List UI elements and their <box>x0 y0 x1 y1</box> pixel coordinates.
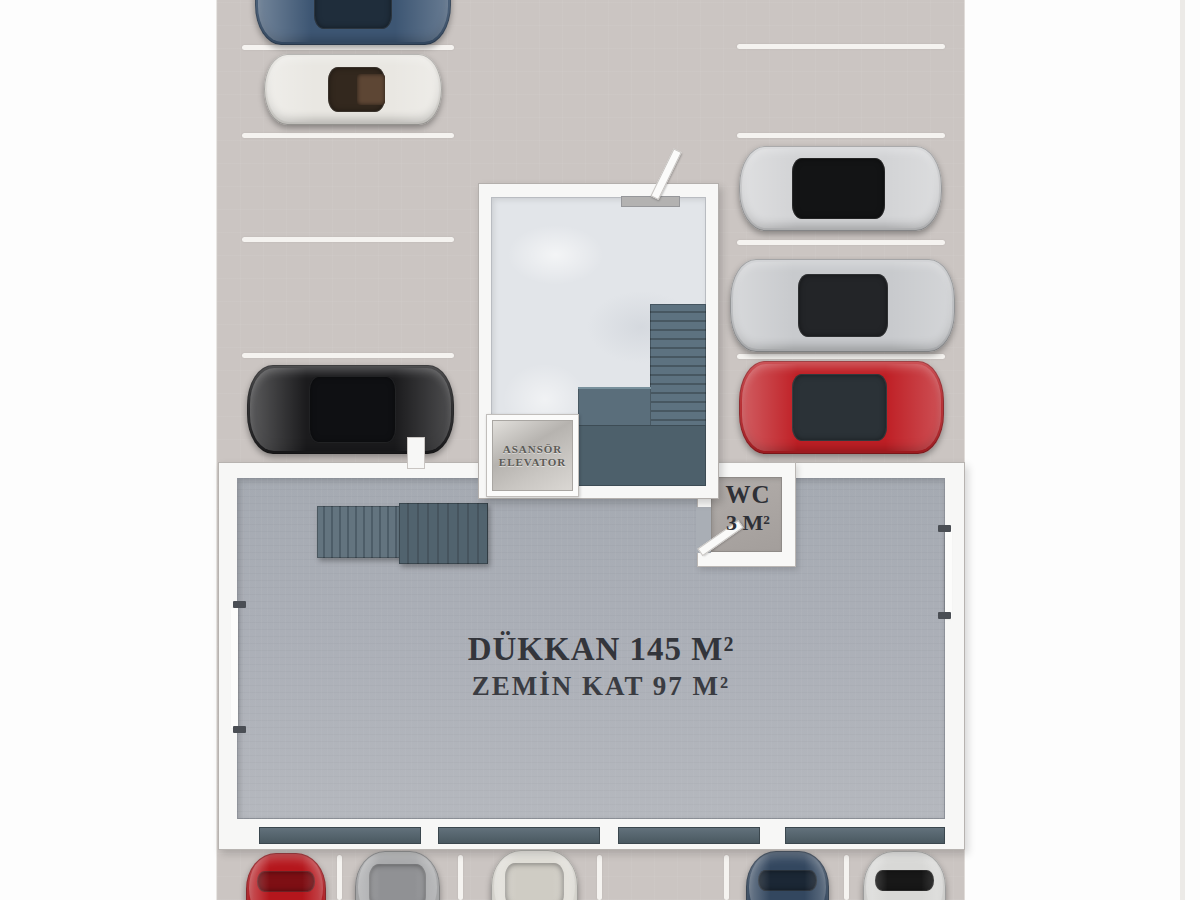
car-red-front-glass <box>257 871 315 892</box>
parking-line-bottom-4 <box>724 855 729 900</box>
parking-line-left-2 <box>242 133 454 138</box>
shop-total-area: DÜKKAN 145 M² <box>468 631 735 668</box>
car-darkblue-front-glass <box>758 870 818 892</box>
lot-right-edge <box>1180 0 1185 900</box>
car-red-coupe <box>739 361 944 454</box>
car-silver-sedan-glass <box>798 274 888 337</box>
parking-line-right-2 <box>737 133 945 138</box>
shop-stairs-upper-flight <box>399 503 488 564</box>
car-darkblue-sedan-top <box>255 0 451 45</box>
car-silver-covered-front <box>355 851 440 900</box>
car-white-convertible-seats <box>357 74 385 105</box>
car-white-convertible <box>264 54 442 125</box>
core-stair-flight <box>650 304 706 426</box>
parking-line-right-4 <box>737 354 945 359</box>
shop-area-label: DÜKKAN 145 M² ZEMİN KAT 97 M² <box>468 631 735 702</box>
entry-door-lintel <box>621 196 680 207</box>
right-window-sill <box>945 529 952 619</box>
elevator-shaft: ASANSÖR ELEVATOR <box>486 414 579 497</box>
car-darkblue-sedan-top-glass <box>314 0 392 29</box>
car-red-coupe-glass <box>792 374 886 441</box>
storefront-window-3 <box>618 827 760 844</box>
floor-plan-canvas: DÜKKAN 145 M² ZEMİN KAT 97 M² WC 3 M² AS… <box>0 0 1200 900</box>
car-darkblue-front <box>746 851 829 900</box>
wall-tick-right-bottom <box>938 612 951 619</box>
storefront-window-4 <box>785 827 945 844</box>
car-white-front <box>863 851 946 900</box>
elevator-label-en: ELEVATOR <box>499 456 566 469</box>
wall-tick-left-top <box>233 601 246 608</box>
elevator-label-tr: ASANSÖR <box>503 443 563 456</box>
core-stair-landing-step <box>578 387 651 427</box>
parking-line-left-3 <box>242 237 454 242</box>
shop-ground-floor-area: ZEMİN KAT 97 M² <box>468 671 735 702</box>
wc-label: WC 3 M² <box>725 481 770 536</box>
car-silver-sedan <box>730 259 955 352</box>
car-red-front <box>246 853 326 900</box>
storefront-window-2 <box>438 827 600 844</box>
wc-area: 3 M² <box>725 510 770 536</box>
wc-name: WC <box>725 481 770 509</box>
elevator-cab: ASANSÖR ELEVATOR <box>492 420 573 491</box>
parking-line-bottom-3 <box>597 855 602 900</box>
parking-line-right-3 <box>737 240 945 245</box>
left-window-sill <box>231 608 238 728</box>
car-silver-coupe-glass <box>792 158 885 219</box>
stair-elevator-core: ASANSÖR ELEVATOR <box>478 183 719 499</box>
car-black-suv-glass <box>309 376 396 444</box>
car-white-front-glass <box>875 870 935 892</box>
parking-line-bottom-2 <box>458 855 463 900</box>
shop-stairs-lower-flight <box>317 506 401 558</box>
parking-line-left-4 <box>242 353 454 358</box>
car-silver-coupe <box>739 146 942 231</box>
parking-line-bottom-5 <box>844 855 849 900</box>
parking-line-right-1 <box>737 44 945 49</box>
core-stair-landing <box>578 425 706 486</box>
parking-line-left-1 <box>242 45 454 50</box>
wall-tick-left-bottom <box>233 726 246 733</box>
car-silver-covered-front-glass <box>369 864 427 900</box>
storefront-window-1 <box>259 827 421 844</box>
parking-line-bottom-1 <box>337 855 342 900</box>
car-cream-covered-front <box>491 850 578 900</box>
shop-unit: DÜKKAN 145 M² ZEMİN KAT 97 M² <box>218 462 965 850</box>
wall-tick-right-top <box>938 525 951 532</box>
car-cream-covered-front-glass <box>505 863 564 900</box>
wall-pier <box>407 437 425 469</box>
